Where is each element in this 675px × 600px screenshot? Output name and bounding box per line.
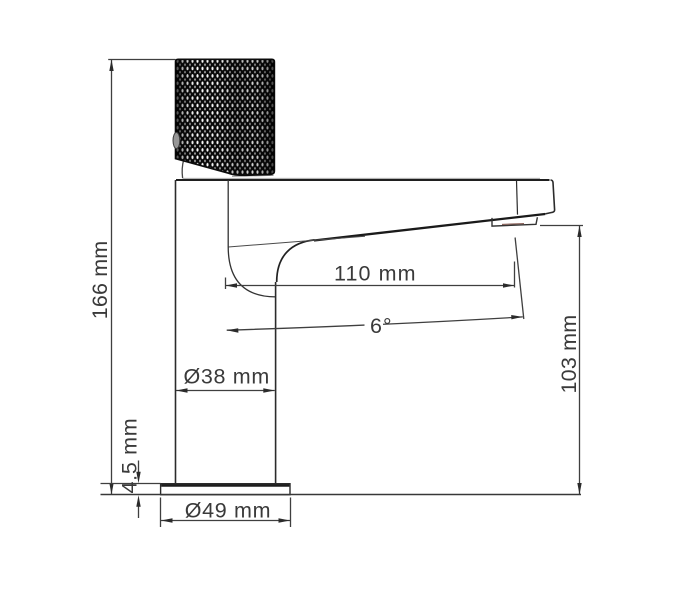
svg-text:166 mm: 166 mm	[88, 241, 112, 320]
svg-text:103 mm: 103 mm	[557, 315, 581, 394]
svg-text:110 mm: 110 mm	[334, 262, 417, 286]
svg-text:Ø38 mm: Ø38 mm	[184, 365, 270, 389]
svg-text:4.5 mm: 4.5 mm	[117, 418, 141, 494]
svg-text:6°: 6°	[370, 314, 393, 338]
svg-text:Ø49 mm: Ø49 mm	[185, 498, 271, 522]
